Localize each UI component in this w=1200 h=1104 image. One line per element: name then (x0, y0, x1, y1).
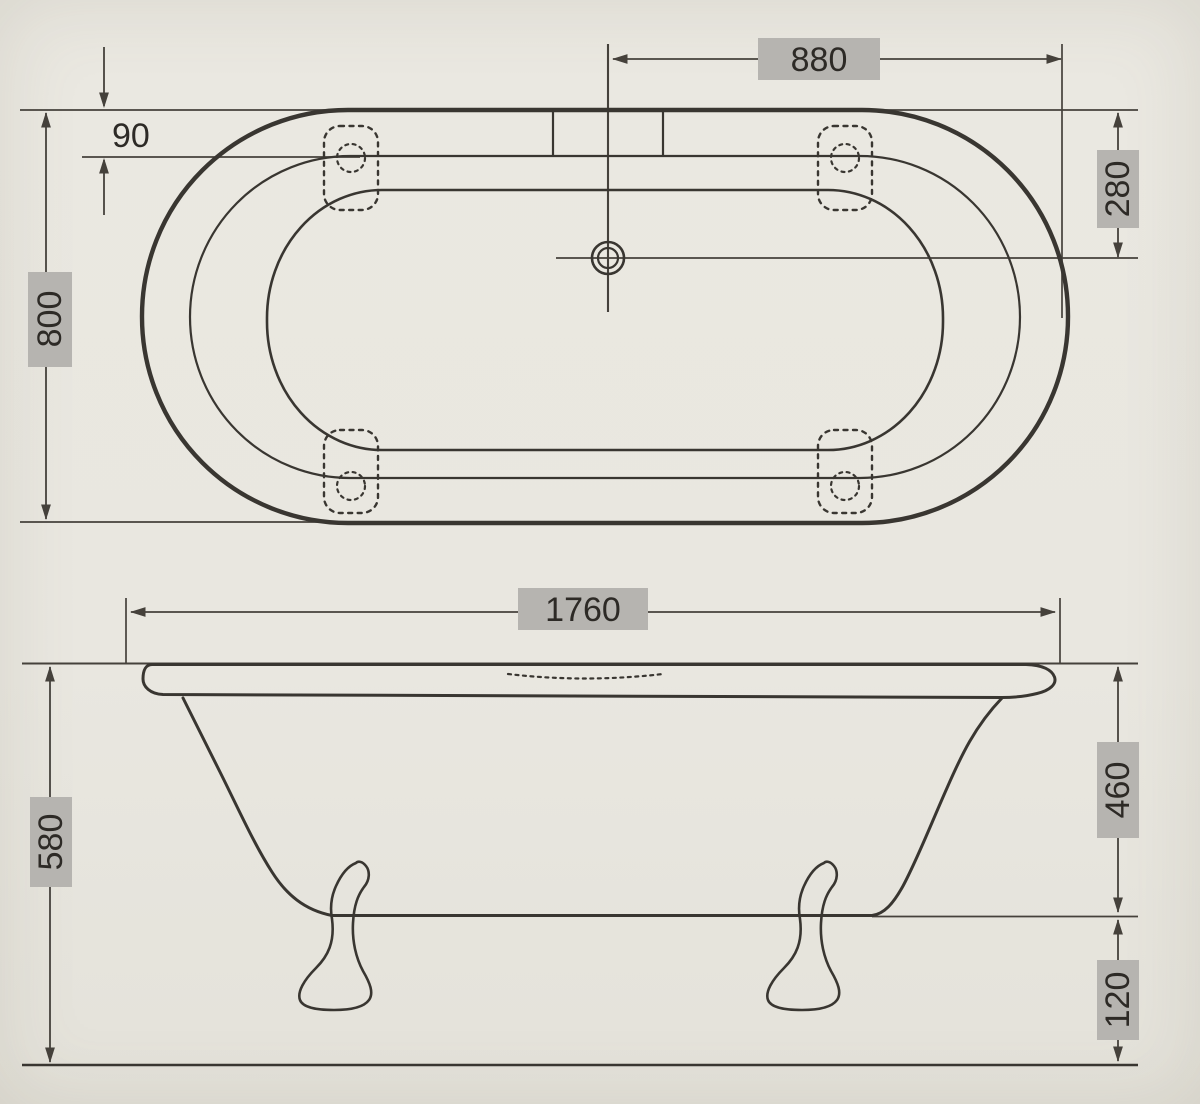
dim-label: 90 (112, 117, 150, 155)
bathtub-dimension-drawing: 880 90 800 280 (0, 0, 1200, 1104)
dim-label: 580 (32, 814, 70, 871)
dim-body-height: 460 (1097, 666, 1139, 913)
dim-total-height: 580 (30, 666, 72, 1063)
dim-label: 1760 (545, 591, 621, 629)
dim-overall-length: 1760 (130, 588, 1056, 630)
dim-arrow-left (612, 54, 628, 64)
tub-basin-outline (267, 190, 943, 450)
dim-arrow-up (45, 666, 55, 682)
dim-label: 880 (791, 41, 848, 79)
overflow-hidden-line (508, 674, 663, 679)
dim-arrow-down (1113, 1047, 1123, 1063)
dim-label: 120 (1099, 972, 1137, 1029)
claw-foot-left (299, 862, 371, 1010)
dim-ground-clearance: 120 (1097, 919, 1139, 1062)
dim-drain-offset: 280 (1097, 112, 1139, 258)
dim-arrow-right (1047, 54, 1063, 64)
dim-half-length: 880 (612, 38, 1062, 80)
rim-profile (143, 665, 1055, 698)
dim-arrow-down (1113, 898, 1123, 914)
dim-arrow-up (1113, 919, 1123, 935)
drawing-sheet: 880 90 800 280 (0, 0, 1200, 1104)
dim-arrow-down (1113, 243, 1123, 259)
tub-rim-inner-edge-outline (190, 156, 1020, 478)
dim-label: 280 (1099, 161, 1137, 218)
dim-arrow-up (1113, 112, 1123, 128)
dim-arrow-up (99, 158, 109, 174)
dim-arrow-up (41, 112, 51, 128)
dim-arrow-right (1041, 607, 1057, 617)
dim-label: 800 (31, 291, 69, 348)
side-view: 1760 580 460 120 (22, 588, 1139, 1065)
handle-fixing-top-right (831, 144, 859, 172)
tub-body-profile (183, 698, 1002, 916)
dim-arrow-up (1113, 666, 1123, 682)
handle-positions (324, 126, 872, 513)
dim-arrow-down (99, 93, 109, 109)
dim-label: 460 (1099, 762, 1137, 819)
dim-overall-width: 800 (28, 112, 72, 520)
handle-fixing-bottom-left (337, 472, 365, 500)
handle-outline-top-left (324, 126, 378, 210)
plan-view: 880 90 800 280 (20, 38, 1139, 523)
dim-arrow-down (45, 1048, 55, 1064)
handle-fixing-top-left (337, 144, 365, 172)
dim-rim-offset: 90 (99, 47, 150, 215)
dim-arrow-down (41, 505, 51, 521)
dim-arrow-left (130, 607, 146, 617)
claw-foot-right (767, 862, 839, 1010)
handle-fixing-bottom-right (831, 472, 859, 500)
